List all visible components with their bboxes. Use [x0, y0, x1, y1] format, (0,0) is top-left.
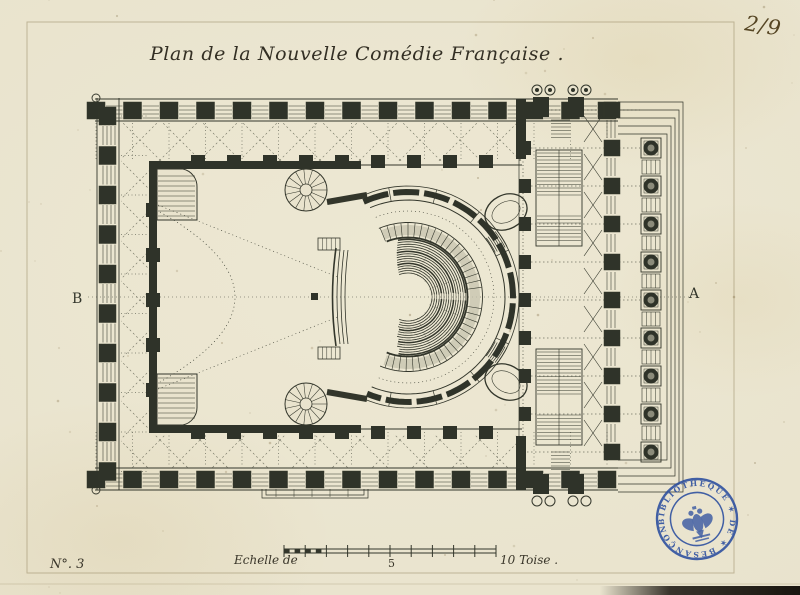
plan-title: Plan de la Nouvelle Comédie Française . [149, 43, 564, 65]
theatre-floor-plan [87, 85, 690, 506]
page-number: 2/9 [742, 11, 783, 41]
scale-mid-value: 5 [388, 557, 395, 570]
engraving-sheet: Plan de la Nouvelle Comédie Française . … [0, 0, 800, 595]
scan-edge-shadow [600, 586, 800, 595]
scale-label: Echelle de [233, 553, 298, 567]
scale-bar: Echelle de 5 10 Toise . [233, 545, 558, 570]
engraving-plan: Plan de la Nouvelle Comédie Française . … [0, 0, 800, 595]
stamp-eagle-emblem [679, 503, 718, 545]
paper-speckle [0, 0, 794, 594]
marker-b: B [72, 291, 82, 307]
scale-end-value: 10 Toise . [500, 553, 558, 567]
plate-number: N°. 3 [49, 557, 84, 572]
library-stamp-icon: BIBLIOTHEQUE ✶ DE ✶ BESANÇON [648, 470, 745, 567]
marker-a: A [688, 286, 700, 302]
